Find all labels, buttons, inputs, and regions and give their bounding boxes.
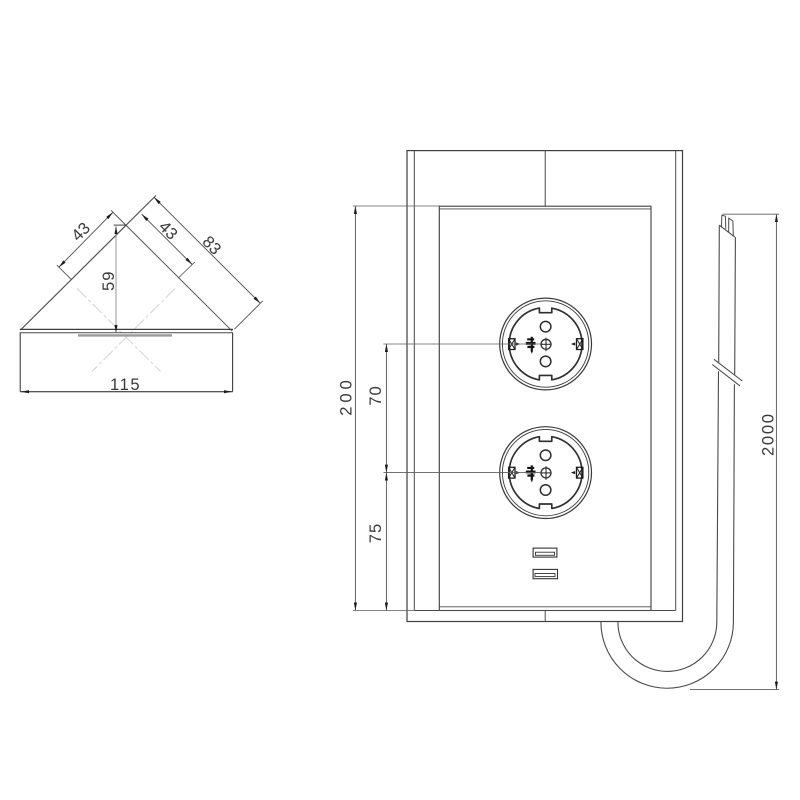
svg-text:2000: 2000 bbox=[759, 414, 778, 456]
svg-text:70: 70 bbox=[366, 386, 385, 406]
svg-text:59: 59 bbox=[99, 272, 118, 292]
svg-text:83: 83 bbox=[199, 232, 225, 258]
svg-text:200: 200 bbox=[337, 380, 356, 416]
svg-text:115: 115 bbox=[110, 375, 140, 394]
svg-text:43: 43 bbox=[67, 218, 93, 244]
svg-text:75: 75 bbox=[366, 524, 385, 544]
